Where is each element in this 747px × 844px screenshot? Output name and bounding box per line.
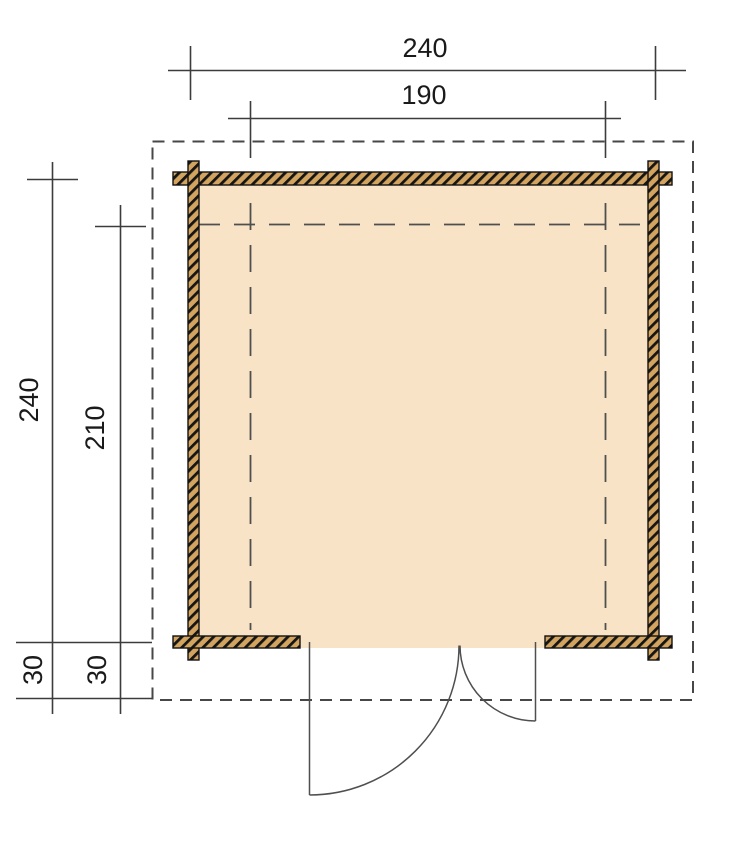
label-top-inner-width: 190 (401, 80, 446, 110)
door-right-swing-arc (460, 646, 536, 722)
wall-bottom-right-segment (545, 636, 672, 648)
label-left-inner-depth: 210 (80, 405, 110, 450)
wall-top (173, 172, 672, 185)
wall-left (188, 161, 199, 660)
label-overhang-outer: 30 (18, 655, 48, 685)
floor-plan-canvas: 240 190 240 210 30 30 (0, 0, 747, 844)
floor-slab (199, 184, 650, 648)
label-overhang-inner: 30 (82, 655, 112, 685)
floor-plan-page: 240 190 240 210 30 30 (0, 0, 747, 844)
wall-bottom-left-segment (173, 636, 300, 648)
label-left-outer-depth: 240 (14, 377, 44, 422)
door-left-swing-arc (310, 646, 460, 796)
label-top-outer-width: 240 (402, 33, 447, 63)
wall-right (648, 161, 659, 660)
double-door (310, 642, 536, 795)
